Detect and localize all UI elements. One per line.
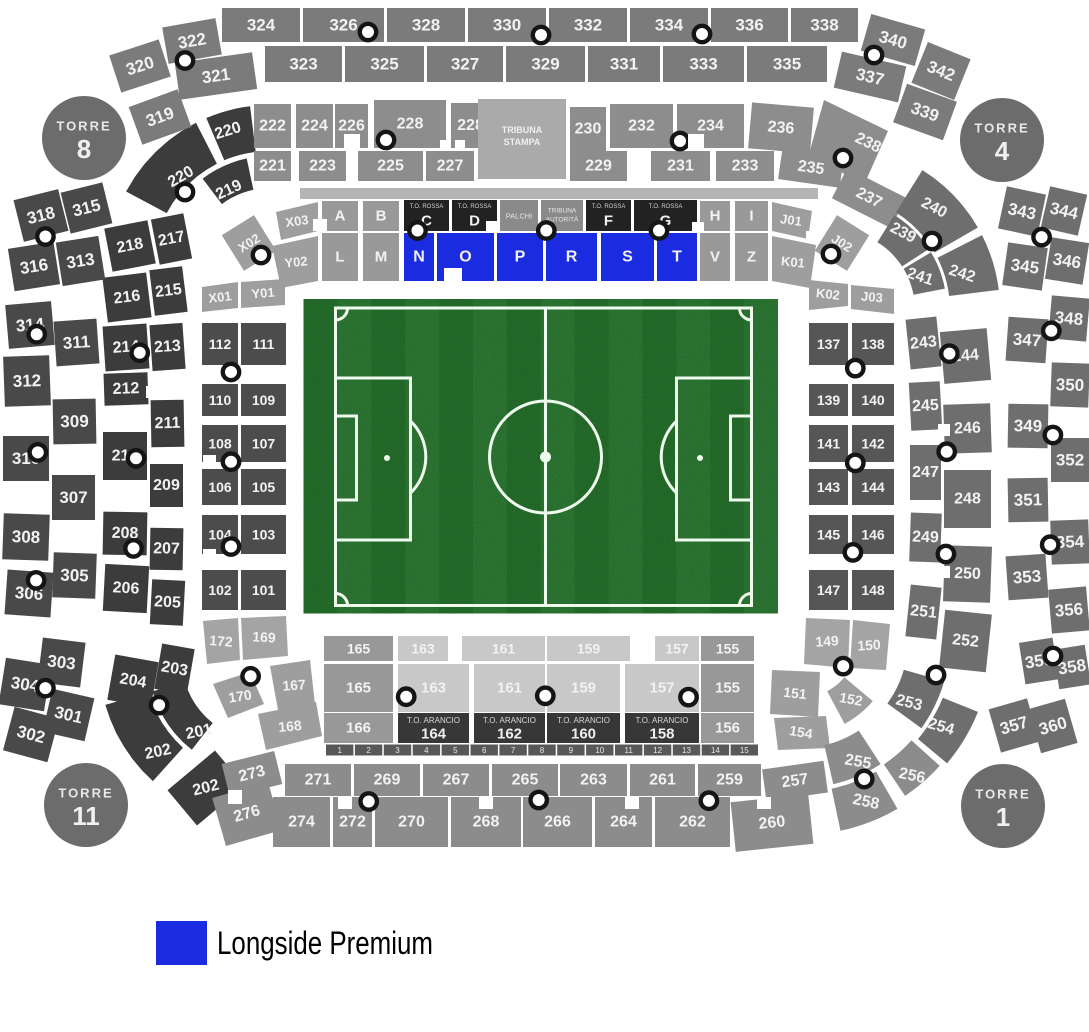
svg-text:172: 172 [209,632,234,650]
svg-text:4: 4 [424,746,429,755]
svg-text:209: 209 [153,477,180,494]
svg-text:156: 156 [715,720,740,737]
svg-text:T.O. ROSSA: T.O. ROSSA [410,204,444,210]
svg-text:303: 303 [46,651,76,673]
svg-text:345: 345 [1010,255,1041,278]
svg-text:Z: Z [747,249,756,266]
svg-text:157: 157 [665,641,689,657]
svg-text:11: 11 [72,801,100,831]
svg-text:H: H [710,208,721,225]
svg-text:4: 4 [995,136,1010,166]
svg-text:105: 105 [252,479,276,495]
svg-text:338: 338 [810,16,838,35]
svg-text:X03: X03 [284,212,309,230]
svg-text:T.O. ARANCIO: T.O. ARANCIO [557,716,610,725]
svg-text:332: 332 [574,16,602,35]
svg-text:Y02: Y02 [284,253,309,270]
svg-text:A: A [335,208,346,225]
svg-text:311: 311 [62,332,91,353]
svg-text:I: I [749,208,753,225]
svg-text:347: 347 [1012,330,1042,351]
svg-text:232: 232 [628,118,655,135]
svg-text:159: 159 [571,680,596,697]
svg-text:333: 333 [689,55,717,74]
svg-text:309: 309 [60,412,89,431]
svg-text:J01: J01 [779,211,803,229]
svg-text:227: 227 [437,158,464,175]
svg-text:T.O. ARANCIO: T.O. ARANCIO [636,716,689,725]
svg-text:163: 163 [411,641,435,657]
svg-text:8: 8 [540,746,545,755]
svg-text:334: 334 [655,16,684,35]
svg-text:207: 207 [153,540,180,557]
svg-text:221: 221 [259,158,286,175]
svg-text:252: 252 [951,631,979,651]
svg-text:101: 101 [252,582,276,598]
svg-text:271: 271 [305,772,332,789]
svg-text:T.O. ARANCIO: T.O. ARANCIO [483,716,536,725]
svg-text:353: 353 [1012,567,1042,588]
svg-text:321: 321 [201,65,232,88]
svg-text:168: 168 [278,717,303,735]
svg-text:142: 142 [861,436,885,452]
svg-text:X01: X01 [208,288,233,306]
svg-text:159: 159 [577,641,601,657]
svg-text:308: 308 [11,527,40,547]
svg-text:336: 336 [735,16,763,35]
svg-text:167: 167 [282,676,307,694]
svg-text:TORRE: TORRE [58,786,113,801]
svg-text:12: 12 [653,746,662,755]
svg-text:K01: K01 [780,253,805,270]
svg-text:140: 140 [861,392,885,408]
svg-text:164: 164 [421,726,447,743]
svg-text:TORRE: TORRE [56,119,111,134]
svg-text:335: 335 [773,55,801,74]
svg-text:267: 267 [443,772,470,789]
svg-text:234: 234 [697,118,724,135]
svg-text:1: 1 [996,802,1010,832]
svg-text:216: 216 [113,287,142,307]
svg-text:228: 228 [397,116,424,133]
svg-text:13: 13 [682,746,691,755]
svg-text:226: 226 [338,118,365,135]
svg-text:223: 223 [309,158,336,175]
svg-text:15: 15 [740,746,749,755]
svg-text:331: 331 [610,55,638,74]
svg-text:205: 205 [154,593,182,611]
svg-text:148: 148 [861,582,885,598]
svg-text:3: 3 [395,746,400,755]
svg-text:263: 263 [580,772,607,789]
svg-text:324: 324 [247,16,276,35]
svg-text:D: D [469,213,480,230]
svg-text:R: R [566,249,578,266]
svg-text:329: 329 [531,55,559,74]
svg-text:224: 224 [301,118,328,135]
svg-text:102: 102 [208,582,232,598]
svg-text:349: 349 [1014,416,1043,435]
svg-text:272: 272 [339,814,366,831]
svg-text:161: 161 [492,641,516,657]
svg-text:145: 145 [817,527,841,543]
svg-text:1: 1 [337,746,342,755]
svg-text:248: 248 [954,491,981,508]
svg-text:264: 264 [610,814,637,831]
svg-text:F: F [604,213,613,230]
svg-text:249: 249 [912,529,939,547]
svg-text:S: S [622,249,633,266]
svg-text:268: 268 [473,814,500,831]
svg-text:212: 212 [112,380,139,398]
svg-text:109: 109 [252,392,276,408]
svg-text:328: 328 [412,16,440,35]
svg-text:251: 251 [909,602,937,622]
svg-text:9: 9 [569,746,574,755]
svg-text:14: 14 [711,746,720,755]
svg-text:233: 233 [732,158,759,175]
svg-text:229: 229 [585,158,612,175]
svg-text:350: 350 [1055,375,1084,395]
svg-text:265: 265 [512,772,539,789]
svg-text:352: 352 [1056,451,1084,470]
svg-text:T.O. ROSSA: T.O. ROSSA [458,204,492,210]
svg-text:B: B [376,208,387,225]
svg-text:274: 274 [288,814,315,831]
svg-text:160: 160 [571,726,596,743]
svg-text:305: 305 [60,566,89,586]
svg-text:259: 259 [716,772,743,789]
svg-text:211: 211 [154,415,180,432]
svg-text:243: 243 [909,333,937,353]
svg-text:107: 107 [252,436,276,452]
svg-text:T.O. ROSSA: T.O. ROSSA [649,204,683,210]
svg-text:155: 155 [716,641,740,657]
svg-text:T.O. ROSSA: T.O. ROSSA [592,204,626,210]
svg-text:TRIBUNA: TRIBUNA [502,125,543,135]
svg-text:170: 170 [227,686,253,705]
svg-text:215: 215 [154,281,183,301]
svg-text:143: 143 [817,479,841,495]
svg-text:149: 149 [815,632,840,650]
svg-text:141: 141 [817,436,841,452]
svg-text:Longside Premium: Longside Premium [217,925,433,961]
svg-text:10: 10 [595,746,604,755]
svg-text:245: 245 [912,397,940,415]
svg-text:262: 262 [679,814,706,831]
svg-text:206: 206 [112,579,140,597]
svg-text:327: 327 [451,55,479,74]
svg-text:11: 11 [625,746,634,755]
svg-text:T.O. ARANCIO: T.O. ARANCIO [407,716,460,725]
svg-text:230: 230 [575,121,602,138]
svg-text:T: T [672,249,682,266]
svg-text:2: 2 [366,746,371,755]
svg-text:Y01: Y01 [251,285,275,302]
svg-text:213: 213 [154,338,182,357]
svg-text:STAMPA: STAMPA [504,137,541,147]
svg-text:325: 325 [370,55,398,74]
svg-text:323: 323 [289,55,317,74]
svg-text:312: 312 [12,371,41,391]
svg-text:246: 246 [954,420,981,438]
svg-text:351: 351 [1014,490,1043,509]
svg-text:L: L [335,249,344,266]
svg-text:169: 169 [252,628,276,645]
svg-text:146: 146 [861,527,885,543]
svg-text:110: 110 [209,392,232,408]
svg-text:N: N [413,249,425,266]
svg-text:V: V [710,249,720,266]
svg-text:260: 260 [758,813,786,833]
svg-text:225: 225 [377,158,404,175]
svg-text:103: 103 [252,527,276,543]
svg-text:M: M [375,249,388,266]
svg-text:6: 6 [482,746,487,755]
svg-text:J03: J03 [861,289,884,306]
svg-text:5: 5 [453,746,458,755]
svg-text:O: O [459,249,471,266]
svg-text:K02: K02 [815,285,840,302]
svg-text:138: 138 [861,336,885,352]
svg-text:330: 330 [493,16,521,35]
svg-text:356: 356 [1054,599,1084,620]
svg-text:166: 166 [346,720,371,737]
svg-text:165: 165 [346,680,371,697]
svg-text:247: 247 [912,464,939,481]
svg-text:150: 150 [857,636,881,653]
svg-text:236: 236 [767,118,795,137]
svg-text:162: 162 [497,726,522,743]
svg-text:163: 163 [421,680,446,697]
svg-text:144: 144 [861,479,885,495]
svg-text:165: 165 [347,641,371,657]
svg-text:106: 106 [208,479,232,495]
svg-text:139: 139 [817,392,841,408]
svg-text:108: 108 [208,436,232,452]
svg-text:307: 307 [59,488,87,507]
svg-text:250: 250 [954,565,981,583]
svg-text:7: 7 [511,746,516,755]
svg-text:PALCHI: PALCHI [506,212,533,221]
svg-text:155: 155 [715,680,740,697]
svg-text:269: 269 [374,772,401,789]
svg-text:161: 161 [497,680,522,697]
svg-text:P: P [515,249,526,266]
svg-text:8: 8 [77,134,91,164]
svg-text:158: 158 [649,726,674,743]
svg-text:157: 157 [649,680,674,697]
svg-text:261: 261 [649,772,676,789]
svg-text:TORRE: TORRE [974,121,1029,136]
svg-text:112: 112 [209,336,232,352]
svg-text:151: 151 [783,684,808,702]
svg-text:147: 147 [817,582,841,598]
svg-text:111: 111 [253,336,275,352]
svg-text:231: 231 [667,158,694,175]
svg-text:222: 222 [259,118,286,135]
svg-text:137: 137 [817,336,841,352]
svg-text:266: 266 [544,814,571,831]
svg-text:270: 270 [398,814,425,831]
svg-text:326: 326 [329,16,357,35]
svg-text:TORRE: TORRE [975,787,1030,802]
svg-text:TRIBUNA: TRIBUNA [548,208,577,215]
